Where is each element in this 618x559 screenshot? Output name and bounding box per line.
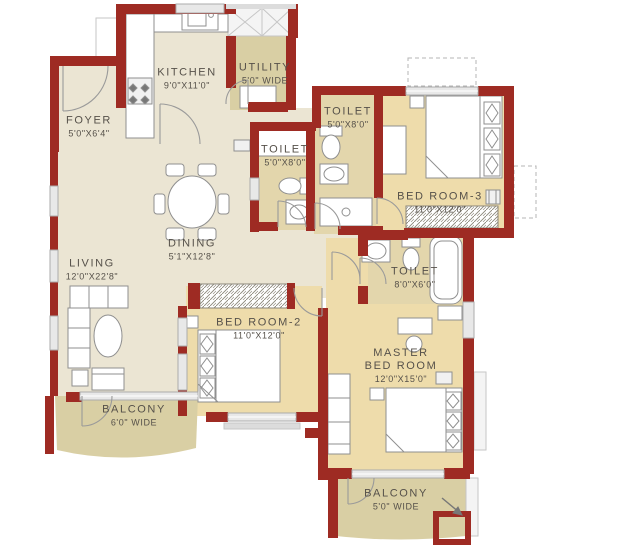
dresser-stool bbox=[406, 336, 422, 352]
washbasin bbox=[290, 205, 308, 219]
bedroom3-wardrobe bbox=[406, 206, 498, 228]
bedside-table bbox=[370, 388, 384, 400]
kitchen-sink bbox=[188, 12, 206, 26]
dining-chair bbox=[198, 228, 216, 240]
armchair bbox=[92, 368, 124, 390]
balcony-living-floor bbox=[55, 396, 198, 458]
bench bbox=[438, 306, 462, 320]
projection-dashed bbox=[408, 58, 476, 86]
cupboard bbox=[380, 126, 406, 174]
dining-chair bbox=[198, 164, 216, 176]
dining-chair bbox=[218, 194, 229, 214]
living-window bbox=[50, 250, 58, 282]
dining-chair bbox=[166, 164, 184, 176]
meter-box bbox=[436, 372, 452, 384]
wc bbox=[322, 135, 340, 159]
bedroom2-wardrobe bbox=[200, 284, 288, 308]
bedside-table bbox=[186, 316, 198, 328]
floor-plan-drawing bbox=[0, 0, 618, 559]
floor-plan-canvas: KITCHEN 9'0"X11'0" UTILITY 5'0" WIDE FOY… bbox=[0, 0, 618, 559]
bedroom2-window bbox=[178, 354, 187, 390]
living-window bbox=[50, 316, 58, 350]
toilet-window bbox=[250, 178, 259, 200]
wc bbox=[279, 178, 301, 194]
wc bbox=[403, 248, 419, 270]
balcony-master-floor bbox=[336, 478, 466, 540]
bedside-table bbox=[410, 96, 424, 108]
washbasin bbox=[324, 167, 344, 181]
washbasin bbox=[366, 243, 386, 259]
dining-chair bbox=[166, 228, 184, 240]
projection-dashed bbox=[514, 166, 536, 218]
ac-unit bbox=[486, 190, 500, 204]
bedroom2-window bbox=[178, 318, 187, 346]
wardrobe-unit bbox=[328, 374, 350, 454]
kitchen-window bbox=[176, 4, 224, 13]
dresser bbox=[398, 318, 432, 334]
dining-chair bbox=[154, 194, 165, 214]
stool bbox=[72, 370, 88, 386]
shower-area bbox=[256, 130, 308, 156]
exterior-ledge bbox=[474, 372, 486, 450]
window-sill bbox=[224, 423, 300, 429]
coffee-table bbox=[94, 315, 122, 357]
master-window bbox=[463, 302, 474, 338]
living-window bbox=[50, 186, 58, 216]
meter-box bbox=[234, 140, 250, 151]
sofa-set bbox=[68, 286, 128, 390]
